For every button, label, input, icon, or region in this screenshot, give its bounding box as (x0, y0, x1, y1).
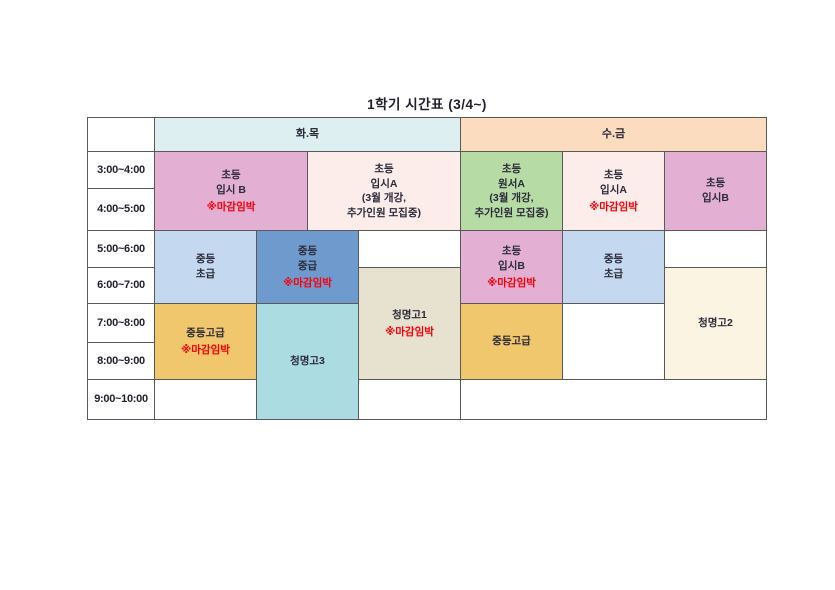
cell-tuethu-middle-advanced: 중등고급 ※마감임박 (155, 304, 256, 379)
cell-tuethu-middle-intermediate: 중등 중급 ※마감임박 (257, 231, 358, 303)
cell-wedfri-elementary-ipsi-b-late: 초등 입시B ※마감임박 (461, 231, 562, 303)
cell-wedfri-elementary-ipsi-a: 초등 입시A ※마감임박 (563, 152, 664, 230)
header-wed-fri: 수.금 (461, 118, 766, 151)
header-tue-thu: 화.목 (155, 118, 460, 151)
header-corner-cell (88, 118, 154, 151)
deadline-badge: ※마감임박 (283, 276, 332, 291)
timetable-page: 1학기 시간표 (3/4~) 화.목 수.금 3:00~4:00 4:00~5:… (0, 0, 835, 590)
header-tue-thu-label: 화.목 (296, 127, 319, 142)
deadline-badge: ※마감임박 (487, 276, 536, 291)
cell-wedfri-empty-7-9 (563, 304, 664, 379)
cell-tuethu-empty-9-10-left (155, 380, 256, 419)
cell-tuethu-elementary-ipsi-b: 초등 입시 B ※마감임박 (155, 152, 307, 230)
cell-tuethu-empty-5-6 (359, 231, 460, 267)
cell-tuethu-middle-beginner: 중등 초급 (155, 231, 256, 303)
time-slot-5-6: 5:00~6:00 (88, 231, 154, 267)
time-slot-7-8: 7:00~8:00 (88, 304, 154, 342)
time-slot-8-9: 8:00~9:00 (88, 343, 154, 379)
cell-tuethu-cheongmyeong-go3: 청명고3 (257, 304, 358, 419)
cell-wedfri-elementary-ipsi-b-early: 초등 입시B (665, 152, 766, 230)
cell-wedfri-middle-beginner: 중등 초급 (563, 231, 664, 303)
cell-wedfri-elementary-wonseo-a: 초등 원서A (3월 개강, 추가인원 모집중) (461, 152, 562, 230)
timetable-grid: 화.목 수.금 3:00~4:00 4:00~5:00 5:00~6:00 6:… (87, 117, 767, 420)
cell-wedfri-empty-9-10 (461, 380, 766, 419)
cell-tuethu-empty-9-10-right (359, 380, 460, 419)
cell-tuethu-cheongmyeong-go1: 청명고1 ※마감임박 (359, 268, 460, 379)
deadline-badge: ※마감임박 (207, 200, 256, 215)
deadline-badge: ※마감임박 (181, 343, 230, 358)
page-title: 1학기 시간표 (3/4~) (87, 93, 767, 113)
time-slot-3-4: 3:00~4:00 (88, 152, 154, 188)
deadline-badge: ※마감임박 (589, 200, 638, 215)
cell-wedfri-middle-advanced: 중등고급 (461, 304, 562, 379)
cell-wedfri-cheongmyeong-go2: 청명고2 (665, 268, 766, 379)
time-slot-6-7: 6:00~7:00 (88, 268, 154, 303)
header-wed-fri-label: 수.금 (602, 127, 625, 142)
cell-wedfri-empty-5-6 (665, 231, 766, 267)
time-slot-9-10: 9:00~10:00 (88, 380, 154, 419)
cell-tuethu-elementary-ipsi-a: 초등 입시A (3월 개강, 추가인원 모집중) (308, 152, 460, 230)
time-slot-4-5: 4:00~5:00 (88, 189, 154, 230)
deadline-badge: ※마감임박 (385, 325, 434, 340)
